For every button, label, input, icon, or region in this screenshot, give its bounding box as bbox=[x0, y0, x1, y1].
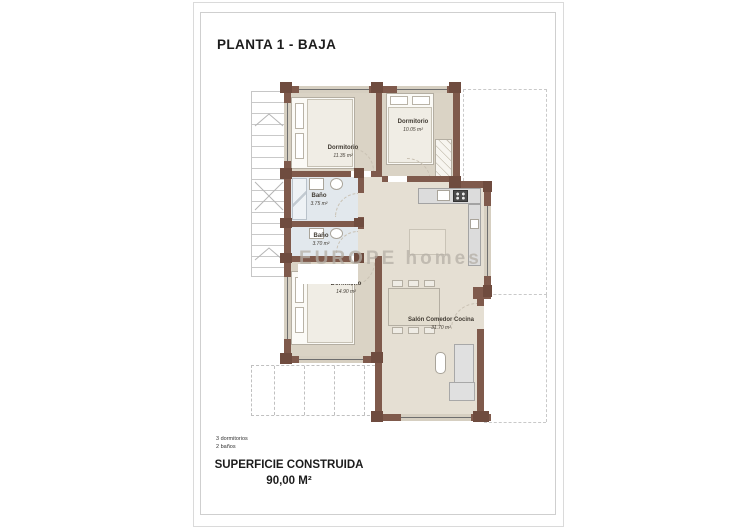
sofa-chaise bbox=[449, 382, 475, 401]
wall-pillar bbox=[371, 352, 383, 363]
room-area: 31.70 m² bbox=[389, 325, 493, 331]
wall-segment bbox=[453, 86, 460, 188]
terrace-outline-line bbox=[546, 295, 547, 422]
pergola-post-line bbox=[364, 366, 365, 415]
stove bbox=[453, 190, 468, 202]
chair bbox=[408, 280, 419, 287]
wall-pillar bbox=[483, 181, 492, 192]
window-glass-line bbox=[401, 417, 471, 418]
window bbox=[299, 86, 369, 93]
kitchen-sink bbox=[437, 190, 450, 201]
footer-bathroom-count: 2 baños bbox=[216, 445, 236, 451]
pergola-terrace bbox=[251, 365, 380, 416]
wall-pillar bbox=[449, 176, 461, 188]
room-name: Salón Comedor Cocina bbox=[389, 317, 493, 325]
window bbox=[401, 414, 471, 421]
room-area: 3.70 m² bbox=[301, 241, 341, 247]
footer-bedroom-count: 3 dormitorios bbox=[216, 437, 248, 443]
wall-segment bbox=[358, 177, 364, 193]
window bbox=[284, 103, 291, 161]
wall-pillar bbox=[371, 411, 383, 422]
wall-pillar bbox=[280, 82, 292, 93]
wall-pillar bbox=[449, 82, 461, 93]
pillow bbox=[295, 133, 304, 159]
terrace-outline-line bbox=[484, 422, 546, 423]
room-area: 11.35 m² bbox=[311, 153, 375, 159]
wall-segment bbox=[376, 93, 382, 176]
toilet bbox=[330, 178, 343, 190]
wall-pillar bbox=[280, 218, 292, 228]
window bbox=[284, 277, 291, 339]
built-area-value: 90,00 M² bbox=[209, 475, 369, 487]
room-name: Dormitorio bbox=[381, 119, 445, 127]
wall-segment bbox=[284, 221, 358, 227]
wall-pillar bbox=[354, 218, 364, 227]
window bbox=[484, 206, 491, 276]
room-name: Baño bbox=[299, 193, 339, 201]
pillow bbox=[295, 307, 304, 333]
window bbox=[397, 86, 447, 93]
wall-pillar bbox=[280, 168, 292, 179]
room-area: 3.75 m² bbox=[299, 201, 339, 207]
wall-pillar bbox=[371, 82, 383, 93]
room-label-bedroom-top-right: Dormitorio 10.05 m² bbox=[381, 119, 445, 133]
wall-pillar bbox=[473, 411, 489, 422]
room-label-bedroom-top-left: Dormitorio 11.35 m² bbox=[311, 145, 375, 159]
wall-segment bbox=[382, 176, 388, 182]
wardrobe bbox=[435, 139, 452, 180]
window-glass-line bbox=[487, 206, 488, 276]
page-title: PLANTA 1 - BAJA bbox=[217, 37, 336, 52]
chair bbox=[424, 280, 435, 287]
wall-pillar bbox=[280, 253, 292, 263]
window-glass-line bbox=[287, 277, 288, 339]
wall-segment bbox=[371, 171, 382, 177]
pergola-post-line bbox=[274, 366, 275, 415]
room-area: 10.05 m² bbox=[381, 127, 445, 133]
wall-segment bbox=[407, 176, 453, 182]
window-glass-line bbox=[397, 89, 447, 90]
chair bbox=[392, 280, 403, 287]
wall-pillar bbox=[483, 285, 492, 297]
window bbox=[299, 356, 363, 363]
plan-sheet: PLANTA 1 - BAJA bbox=[193, 2, 564, 527]
wall-pillar bbox=[280, 353, 292, 364]
stair-direction-marks bbox=[252, 92, 286, 278]
side-table bbox=[435, 352, 446, 374]
kitchen-appliance bbox=[470, 219, 479, 229]
pillow bbox=[412, 96, 430, 105]
room-name: Dormitorio bbox=[311, 145, 375, 153]
pillow bbox=[295, 103, 304, 129]
room-area: 14.90 m² bbox=[314, 289, 378, 295]
window-glass-line bbox=[287, 103, 288, 161]
pergola-post-line bbox=[334, 366, 335, 415]
room-name: Baño bbox=[301, 233, 341, 241]
room-label-bath-2: Baño 3.70 m² bbox=[301, 233, 341, 247]
built-area-label: SUPERFICIE CONSTRUIDA bbox=[209, 459, 369, 471]
watermark-cover-patch bbox=[298, 264, 358, 284]
pillow bbox=[390, 96, 408, 105]
wall-pillar bbox=[354, 168, 364, 178]
blanket bbox=[388, 107, 432, 163]
room-label-living-kitchen: Salón Comedor Cocina 31.70 m² bbox=[389, 317, 493, 331]
wall-segment bbox=[284, 171, 351, 177]
window-glass-line bbox=[299, 89, 369, 90]
sink bbox=[309, 178, 324, 190]
pergola-post-line bbox=[304, 366, 305, 415]
screenshot-canvas: PLANTA 1 - BAJA bbox=[0, 0, 756, 528]
external-staircase bbox=[251, 91, 285, 277]
room-label-bath-1: Baño 3.75 m² bbox=[299, 193, 339, 207]
wall-segment bbox=[477, 329, 484, 421]
window-glass-line bbox=[299, 359, 363, 360]
